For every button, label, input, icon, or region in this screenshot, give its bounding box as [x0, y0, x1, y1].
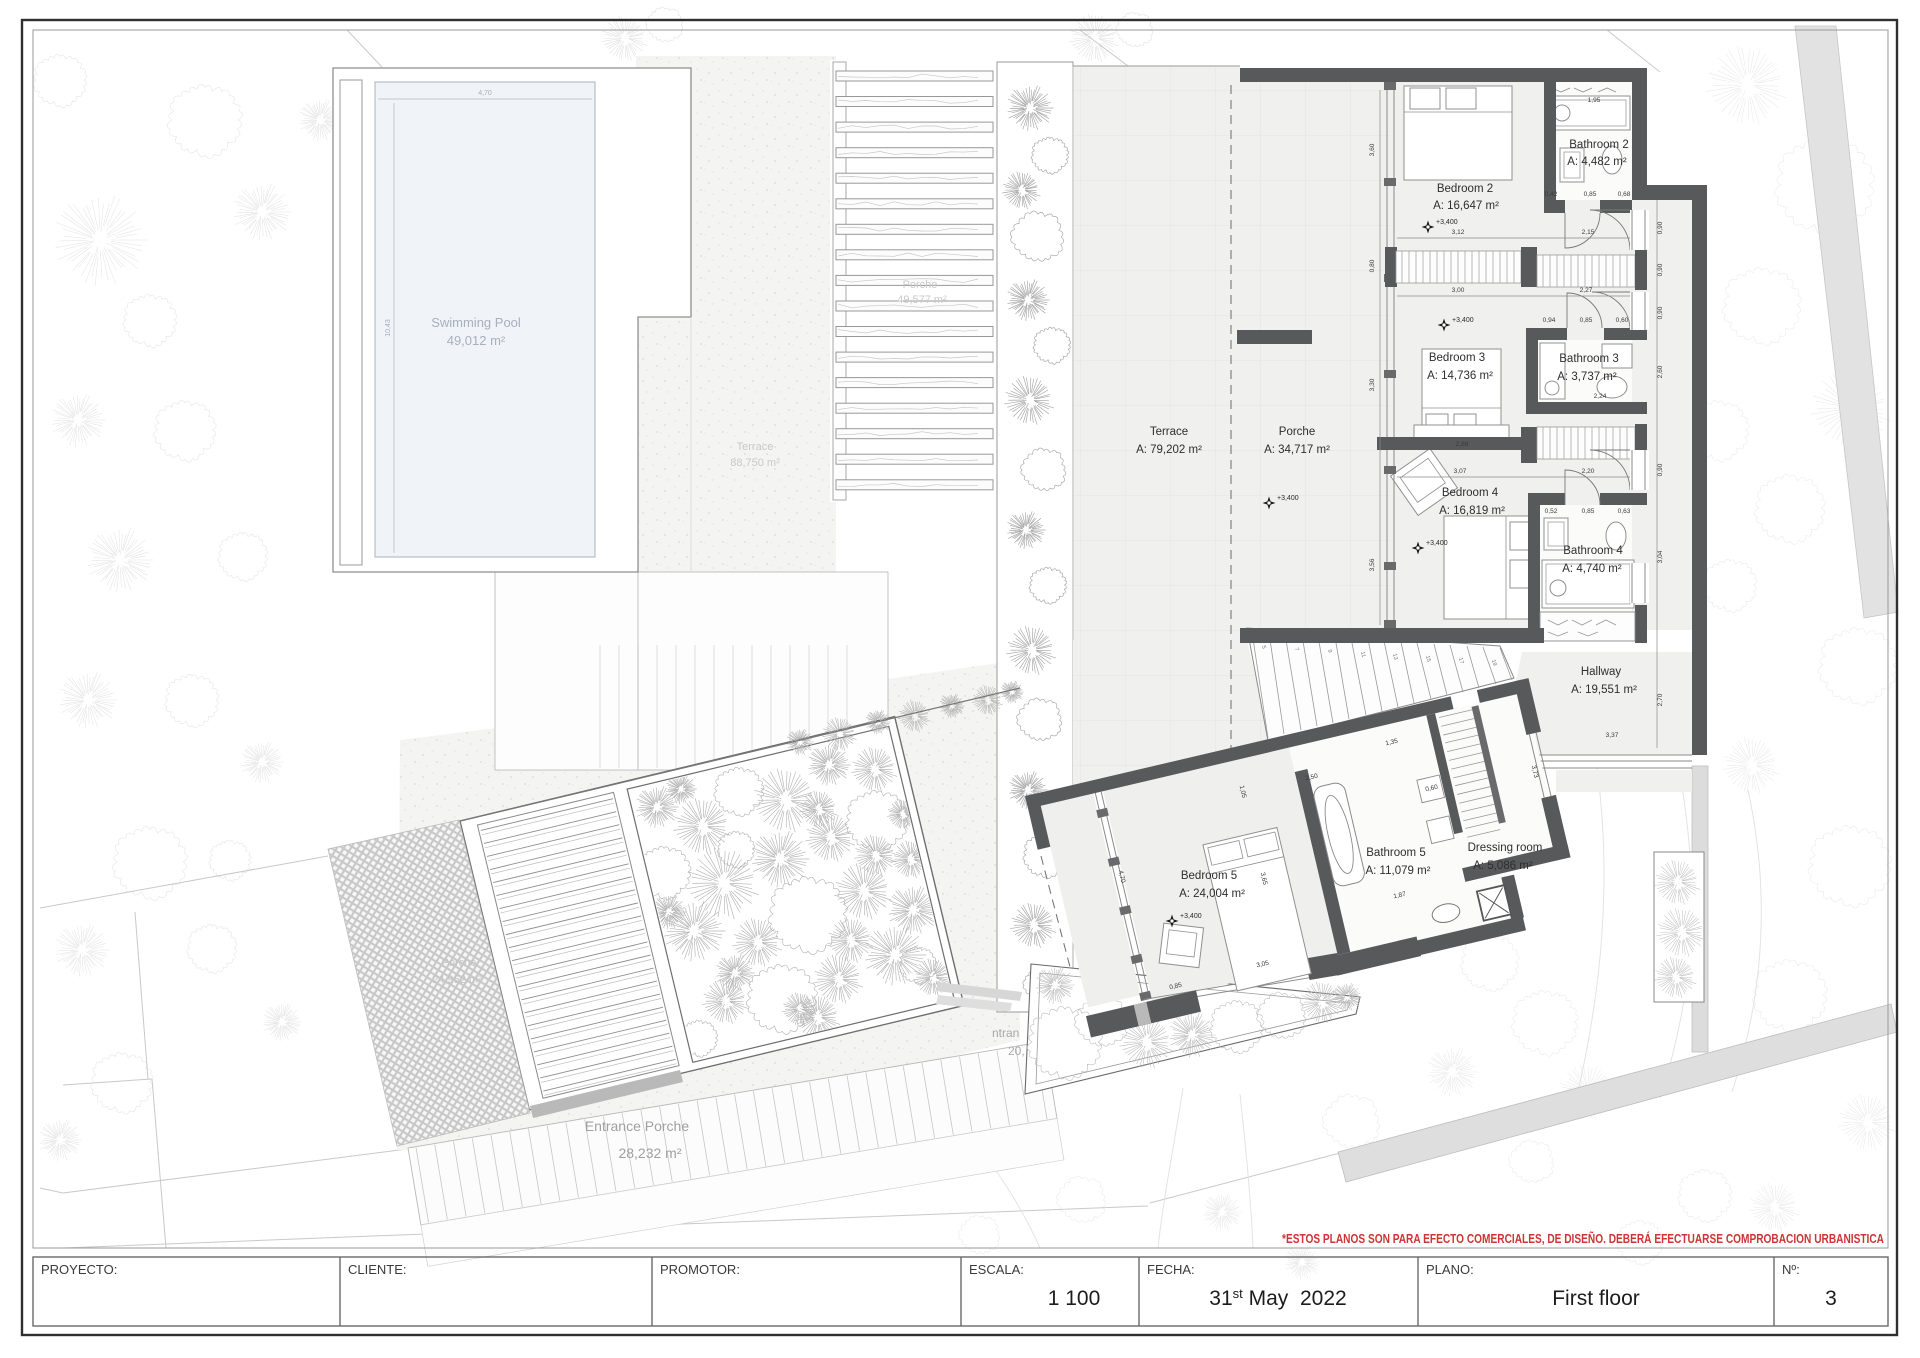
svg-text:A: 11,079 m²: A: 11,079 m² [1366, 865, 1431, 877]
svg-text:49,577 m²: 49,577 m² [897, 294, 947, 306]
svg-text:0,80: 0,80 [1369, 259, 1376, 272]
svg-text:0,90: 0,90 [1657, 306, 1664, 319]
svg-text:0,90: 0,90 [1657, 221, 1664, 234]
svg-text:3,00: 3,00 [1452, 287, 1465, 294]
svg-text:88,750 m²: 88,750 m² [730, 457, 780, 469]
svg-text:Entrance Porche: Entrance Porche [585, 1118, 689, 1134]
svg-text:28,232 m²: 28,232 m² [618, 1145, 681, 1161]
svg-text:1,95: 1,95 [1588, 97, 1601, 104]
svg-text:A: 24,004 m²: A: 24,004 m² [1179, 888, 1245, 900]
svg-text:0,52: 0,52 [1545, 508, 1558, 515]
svg-text:0,90: 0,90 [1657, 463, 1664, 476]
svg-text:Bathroom 2: Bathroom 2 [1569, 139, 1628, 151]
svg-text:20,: 20, [1008, 1044, 1025, 1058]
svg-text:A: 19,551 m²: A: 19,551 m² [1571, 684, 1637, 696]
svg-text:Nº:: Nº: [1782, 1262, 1800, 1277]
svg-text:3,60: 3,60 [1369, 143, 1376, 156]
svg-text:A: 79,202 m²: A: 79,202 m² [1136, 444, 1202, 456]
svg-text:FECHA:: FECHA: [1147, 1262, 1195, 1277]
svg-text:PROMOTOR:: PROMOTOR: [660, 1262, 740, 1277]
svg-text:2,27: 2,27 [1580, 287, 1593, 294]
svg-text:Porche: Porche [1279, 426, 1315, 438]
svg-text:+3,400: +3,400 [1452, 317, 1474, 324]
svg-text:2,20: 2,20 [1582, 468, 1595, 475]
svg-text:ESCALA:: ESCALA: [969, 1262, 1024, 1277]
svg-text:+3,400: +3,400 [1277, 495, 1299, 502]
svg-text:Bedroom 3: Bedroom 3 [1429, 352, 1485, 364]
svg-text:PLANO:: PLANO: [1426, 1262, 1474, 1277]
svg-text:Hallway: Hallway [1581, 666, 1622, 678]
svg-text:4,70: 4,70 [478, 90, 492, 97]
svg-text:A: 3,737 m²: A: 3,737 m² [1557, 371, 1617, 383]
svg-text:*ESTOS PLANOS SON PARA EFECTO: *ESTOS PLANOS SON PARA EFECTO COMERCIALE… [1282, 1231, 1884, 1246]
svg-text:3,12: 3,12 [1452, 229, 1465, 236]
svg-text:0,85: 0,85 [1584, 191, 1597, 198]
svg-text:24,952 m²: 24,952 m² [432, 974, 482, 986]
svg-text:Porche: Porche [442, 957, 477, 969]
svg-text:Porche: Porche [903, 279, 938, 291]
svg-text:A: 34,717 m²: A: 34,717 m² [1264, 444, 1330, 456]
svg-text:49,012 m²: 49,012 m² [447, 333, 506, 348]
svg-text:3,04: 3,04 [1657, 550, 1664, 563]
svg-text:2,60: 2,60 [1657, 365, 1664, 378]
svg-text:+3,400: +3,400 [1436, 219, 1458, 226]
svg-text:+3,400: +3,400 [1426, 540, 1448, 547]
svg-text:A: 4,740 m²: A: 4,740 m² [1562, 563, 1622, 575]
svg-text:Swimming Pool: Swimming Pool [431, 315, 521, 330]
svg-text:Bathroom 3: Bathroom 3 [1559, 353, 1618, 365]
svg-text:A: 14,736 m²: A: 14,736 m² [1427, 370, 1493, 382]
svg-text:First floor: First floor [1552, 1287, 1640, 1310]
svg-text:2,15: 2,15 [1582, 229, 1595, 236]
svg-text:Bathroom 4: Bathroom 4 [1563, 545, 1623, 557]
svg-text:Bedroom 2: Bedroom 2 [1437, 183, 1493, 195]
svg-text:A: 16,819 m²: A: 16,819 m² [1439, 505, 1505, 517]
svg-text:ntran: ntran [992, 1026, 1019, 1040]
svg-text:0,63: 0,63 [1618, 508, 1631, 515]
svg-text:2,88: 2,88 [1456, 441, 1469, 448]
svg-text:PROYECTO:: PROYECTO: [41, 1262, 117, 1277]
svg-text:A: 5,086 m²: A: 5,086 m² [1473, 860, 1533, 872]
svg-text:0,68: 0,68 [1618, 191, 1631, 198]
svg-text:0,94: 0,94 [1543, 317, 1556, 324]
svg-text:2,70: 2,70 [1657, 693, 1664, 706]
svg-text:3,37: 3,37 [1606, 732, 1619, 739]
svg-text:Bathroom 5: Bathroom 5 [1366, 847, 1425, 859]
svg-text:3,30: 3,30 [1369, 378, 1376, 391]
svg-text:1 100: 1 100 [1048, 1287, 1101, 1310]
svg-text:10,43: 10,43 [385, 319, 392, 337]
svg-text:3,56: 3,56 [1369, 558, 1376, 571]
svg-text:31st May 2022: 31st May 2022 [1209, 1286, 1346, 1310]
svg-text:Terrace: Terrace [737, 441, 774, 453]
svg-text:3,07: 3,07 [1454, 468, 1467, 475]
svg-text:Terrace: Terrace [1150, 426, 1188, 438]
svg-text:2,24: 2,24 [1594, 393, 1607, 400]
svg-text:+3,400: +3,400 [1180, 913, 1202, 920]
svg-text:0,90: 0,90 [1657, 263, 1664, 276]
svg-text:A: 16,647 m²: A: 16,647 m² [1433, 200, 1499, 212]
svg-text:3: 3 [1825, 1287, 1837, 1310]
svg-text:0,85: 0,85 [1582, 508, 1595, 515]
svg-text:CLIENTE:: CLIENTE: [348, 1262, 407, 1277]
svg-text:Bedroom 5: Bedroom 5 [1181, 870, 1237, 882]
svg-text:Dressing room: Dressing room [1468, 842, 1543, 854]
svg-text:A: 4,482 m²: A: 4,482 m² [1567, 156, 1627, 168]
svg-text:0,60: 0,60 [1616, 317, 1629, 324]
svg-text:Bedroom 4: Bedroom 4 [1442, 487, 1499, 499]
svg-text:0,42: 0,42 [1545, 191, 1558, 198]
svg-text:0,85: 0,85 [1580, 317, 1593, 324]
